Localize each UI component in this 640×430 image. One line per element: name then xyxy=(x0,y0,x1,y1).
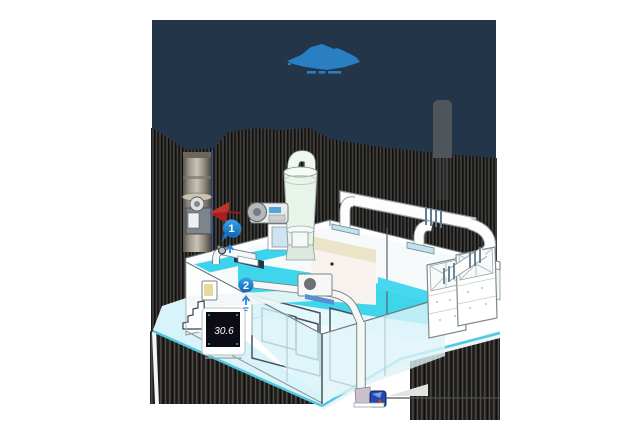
svg-text:2: 2 xyxy=(243,280,249,292)
svg-text:30.6: 30.6 xyxy=(214,326,234,337)
svg-text:1: 1 xyxy=(228,223,234,235)
